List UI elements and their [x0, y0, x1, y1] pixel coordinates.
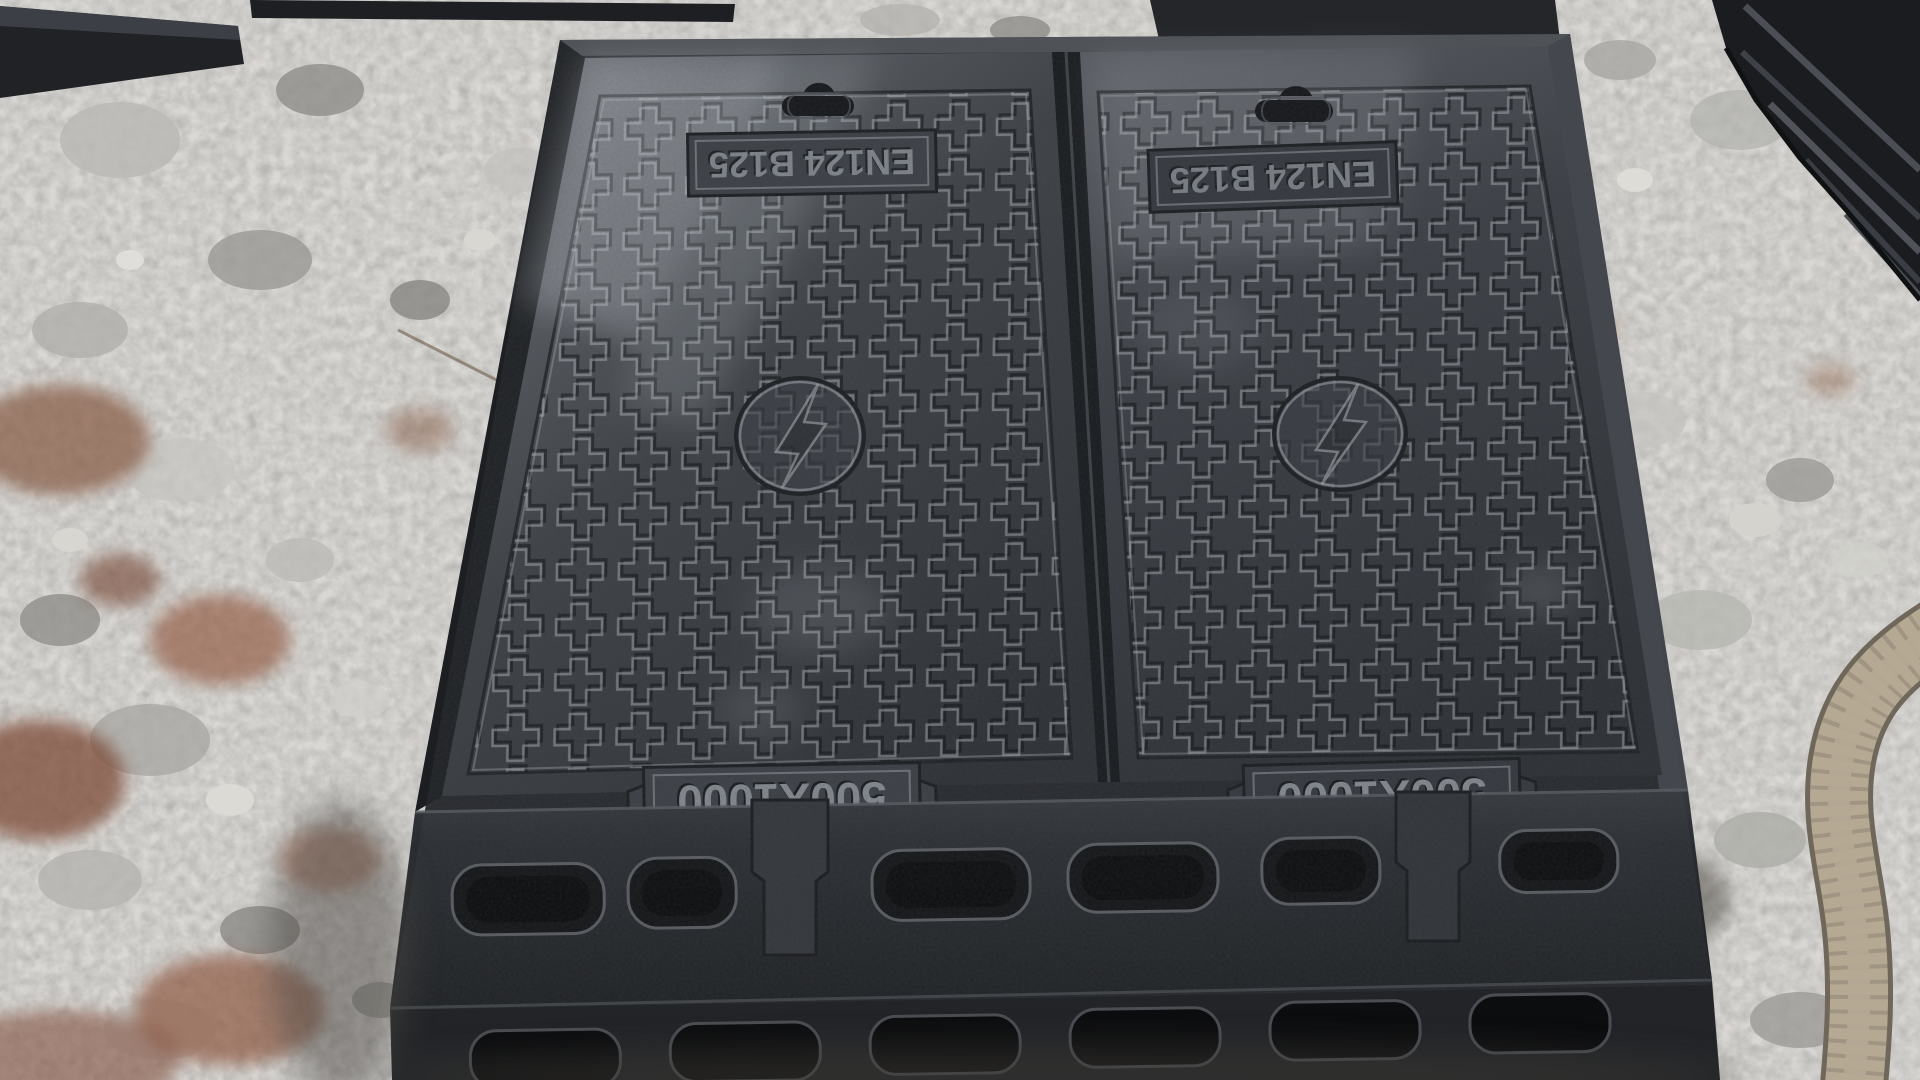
vent-slot	[1470, 993, 1611, 1053]
metal-texture	[380, 25, 1725, 1080]
photo-of-cast-iron-covers: EN124 B125 EN124 B125 500X1000 500X1000	[0, 0, 1920, 1080]
cover-assembly: EN124 B125 EN124 B125 500X1000 500X1000	[380, 25, 1725, 1080]
photo-canvas: EN124 B125 EN124 B125 500X1000 500X1000	[0, 0, 1920, 1080]
